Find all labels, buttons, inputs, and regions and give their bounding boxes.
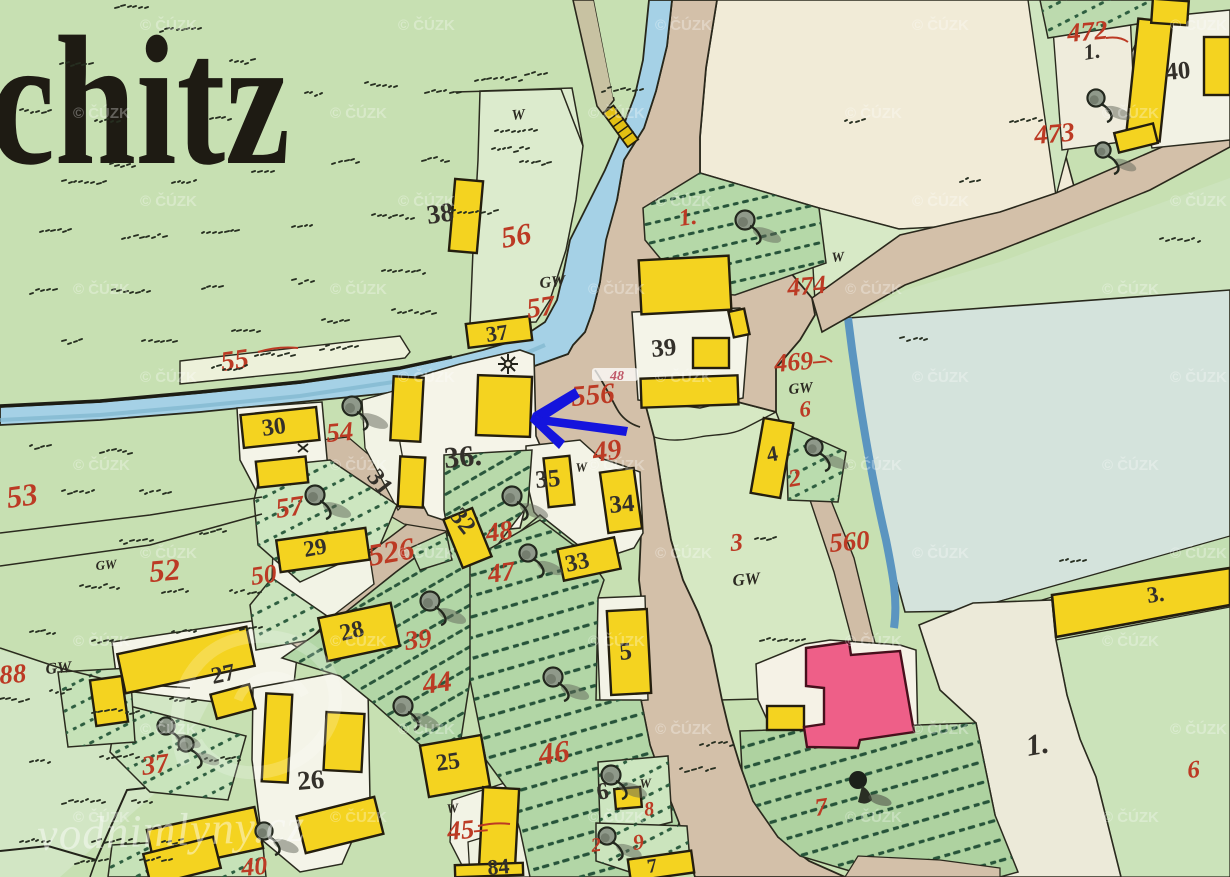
svg-text:© ČÚZK: © ČÚZK (655, 16, 712, 34)
svg-text:© ČÚZK: © ČÚZK (912, 544, 969, 562)
svg-text:© ČÚZK: © ČÚZK (1170, 192, 1227, 210)
svg-text:© ČÚZK: © ČÚZK (330, 808, 387, 826)
svg-text:© ČÚZK: © ČÚZK (588, 104, 645, 122)
svg-text:GW: GW (95, 556, 119, 573)
svg-text:34: 34 (608, 490, 636, 519)
svg-text:472: 472 (1065, 15, 1109, 49)
svg-text:© ČÚZK: © ČÚZK (588, 808, 645, 826)
svg-text:3: 3 (728, 529, 744, 557)
svg-text:© ČÚZK: © ČÚZK (845, 632, 902, 650)
svg-text:© ČÚZK: © ČÚZK (588, 280, 645, 298)
svg-text:48: 48 (483, 514, 515, 548)
svg-text:© ČÚZK: © ČÚZK (588, 632, 645, 650)
svg-text:39: 39 (650, 334, 677, 363)
svg-text:© ČÚZK: © ČÚZK (1102, 456, 1159, 474)
svg-text:GW: GW (539, 273, 568, 292)
svg-text:50: 50 (249, 559, 279, 591)
svg-text:54: 54 (325, 416, 355, 448)
svg-text:© ČÚZK: © ČÚZK (1170, 368, 1227, 386)
svg-text:37: 37 (484, 319, 509, 347)
svg-text:© ČÚZK: © ČÚZK (1102, 632, 1159, 650)
svg-text:© ČÚZK: © ČÚZK (1170, 720, 1227, 738)
svg-text:53: 53 (4, 476, 40, 515)
svg-text:© ČÚZK: © ČÚZK (655, 720, 712, 738)
svg-text:© ČÚZK: © ČÚZK (73, 104, 130, 122)
svg-text:45–: 45– (445, 813, 489, 847)
svg-text:© ČÚZK: © ČÚZK (398, 368, 455, 386)
svg-text:GW: GW (788, 380, 815, 398)
svg-text:57: 57 (274, 490, 307, 525)
svg-text:56: 56 (498, 217, 533, 255)
svg-text:© ČÚZK: © ČÚZK (1102, 104, 1159, 122)
svg-text:47: 47 (485, 555, 518, 589)
svg-text:© ČÚZK: © ČÚZK (330, 280, 387, 298)
svg-text:40: 40 (1164, 57, 1191, 86)
svg-text:© ČÚZK: © ČÚZK (655, 192, 712, 210)
svg-text:469–: 469– (772, 345, 827, 379)
svg-text:GW: GW (732, 569, 763, 590)
svg-text:474: 474 (785, 270, 827, 302)
svg-text:3.: 3. (1145, 581, 1166, 608)
svg-text:84: 84 (486, 853, 510, 877)
svg-text:© ČÚZK: © ČÚZK (140, 544, 197, 562)
svg-text:© ČÚZK: © ČÚZK (330, 104, 387, 122)
svg-text:29: 29 (302, 533, 329, 562)
svg-text:© ČÚZK: © ČÚZK (912, 16, 969, 34)
svg-text:© ČÚZK: © ČÚZK (398, 720, 455, 738)
svg-text:© ČÚZK: © ČÚZK (1170, 16, 1227, 34)
svg-text:© ČÚZK: © ČÚZK (655, 544, 712, 562)
svg-text:© ČÚZK: © ČÚZK (73, 280, 130, 298)
svg-text:25: 25 (434, 748, 461, 777)
svg-text:560: 560 (828, 525, 871, 558)
svg-text:© ČÚZK: © ČÚZK (140, 368, 197, 386)
svg-text:© ČÚZK: © ČÚZK (912, 368, 969, 386)
svg-text:© ČÚZK: © ČÚZK (140, 16, 197, 34)
svg-text:40: 40 (239, 851, 268, 877)
svg-text:© ČÚZK: © ČÚZK (912, 720, 969, 738)
svg-text:© ČÚZK: © ČÚZK (330, 632, 387, 650)
svg-text:88: 88 (0, 658, 28, 690)
svg-text:© ČÚZK: © ČÚZK (398, 544, 455, 562)
svg-text:© ČÚZK: © ČÚZK (398, 192, 455, 210)
svg-text:39: 39 (402, 622, 434, 656)
svg-text:30: 30 (260, 413, 287, 442)
svg-text:© ČÚZK: © ČÚZK (845, 808, 902, 826)
svg-text:© ČÚZK: © ČÚZK (73, 808, 130, 826)
svg-text:© ČÚZK: © ČÚZK (73, 632, 130, 650)
svg-text:© ČÚZK: © ČÚZK (140, 720, 197, 738)
svg-text:© ČÚZK: © ČÚZK (330, 456, 387, 474)
svg-text:46: 46 (535, 733, 572, 772)
svg-text:37: 37 (139, 747, 172, 781)
svg-text:© ČÚZK: © ČÚZK (655, 368, 712, 386)
svg-text:© ČÚZK: © ČÚZK (1170, 544, 1227, 562)
svg-text:© ČÚZK: © ČÚZK (1102, 280, 1159, 298)
svg-text:© ČÚZK: © ČÚZK (845, 456, 902, 474)
svg-text:© ČÚZK: © ČÚZK (1102, 808, 1159, 826)
svg-text:44: 44 (420, 665, 454, 701)
svg-text:26: 26 (296, 764, 326, 796)
svg-text:55: 55 (219, 343, 251, 378)
svg-text:© ČÚZK: © ČÚZK (845, 280, 902, 298)
svg-text:48: 48 (609, 369, 624, 384)
svg-text:GW: GW (45, 659, 74, 678)
svg-text:© ČÚZK: © ČÚZK (845, 104, 902, 122)
svg-text:© ČÚZK: © ČÚZK (73, 456, 130, 474)
svg-text:© ČÚZK: © ČÚZK (140, 192, 197, 210)
svg-text:36.: 36. (443, 439, 483, 475)
svg-text:© ČÚZK: © ČÚZK (588, 456, 645, 474)
svg-text:35: 35 (534, 465, 561, 494)
svg-text:© ČÚZK: © ČÚZK (912, 192, 969, 210)
svg-text:57: 57 (525, 290, 558, 325)
svg-text:© ČÚZK: © ČÚZK (398, 16, 455, 34)
